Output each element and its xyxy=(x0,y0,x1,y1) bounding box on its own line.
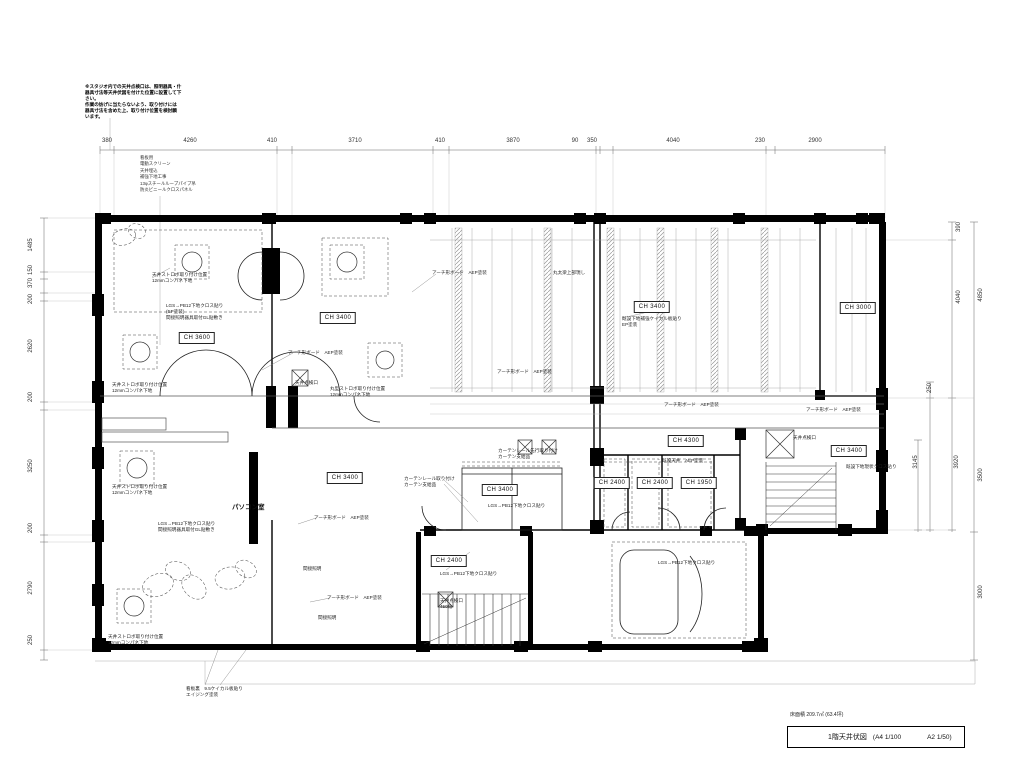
dim-top-10: 2900 xyxy=(808,138,821,144)
annotation-24: 天井点検口 450角 xyxy=(440,598,463,610)
ceiling-height-label-3: CH 3000 xyxy=(840,302,876,314)
annotation-20: 間接照明 xyxy=(303,566,321,572)
dim-top-2: 410 xyxy=(267,138,277,144)
border-lines xyxy=(95,118,975,684)
dim-left-2: 370 xyxy=(28,278,34,288)
dim-right-6: 3500 xyxy=(978,468,984,481)
dim-right-5: 3920 xyxy=(954,455,960,468)
annotation-28: 天井ストロボ取り付け位置 12mmコンパネ下地 xyxy=(108,634,163,646)
annotation-26: 天井点検口 xyxy=(793,435,816,441)
dim-left-0: 1485 xyxy=(28,238,34,251)
room-label-pc: パソコン室 xyxy=(232,501,265,511)
dim-right-3: 250 xyxy=(927,383,933,393)
floorplan-canvas: ※スタジオ内での天井点検口は、照明器具・什 器具寸法等天井伏図を付けた位置に設置… xyxy=(0,0,1024,778)
annotation-11: アーチ形ボード AEP塗装 xyxy=(664,402,719,408)
ceiling-height-label-5: CH 3400 xyxy=(831,445,867,457)
scale-a2: A2 1/50) xyxy=(927,734,952,741)
ceiling-height-label-1: CH 3400 xyxy=(320,312,356,324)
ceiling-height-label-11: CH 2400 xyxy=(431,555,467,567)
annotation-8: 丸太梁上部現し xyxy=(553,270,585,276)
leader-lines xyxy=(152,268,648,685)
partitions xyxy=(272,222,884,646)
dim-top-5: 3870 xyxy=(506,138,519,144)
annotation-5: 天井点検口 xyxy=(295,380,318,386)
annotation-4: アーチ形ボード AEP塗装 xyxy=(288,350,343,356)
annotation-21: アーチ形ボード AEP塗装 xyxy=(327,595,382,601)
annotation-12: アーチ形ボード AEP塗装 xyxy=(806,407,861,413)
hatched-strips xyxy=(455,228,768,392)
dim-left-5: 200 xyxy=(28,392,34,402)
annotation-1: LGS→PB12下地クロス貼り (EP塗装) 間接照明器具取付GL貼敷き xyxy=(166,303,223,321)
annotation-7: アーチ形ボード AEP塗装 xyxy=(432,270,487,276)
annotation-17: LGS→PB12下地クロス貼り xyxy=(488,503,545,509)
area-text: 床面積 209.7㎡ (63.4坪) xyxy=(790,711,843,718)
dim-right-7: 3000 xyxy=(978,585,984,598)
ceiling-height-label-7: CH 3400 xyxy=(482,484,518,496)
dim-top-1: 4260 xyxy=(183,138,196,144)
annotation-6: 丸型ストロボ取り付け位置 12mmコンパネ下地 xyxy=(330,386,385,398)
drawing-title: 1階天井伏図 xyxy=(828,732,867,742)
annotation-0: 天井ストロボ取り付け位置 12mmコンパネ下地 xyxy=(152,272,207,284)
annotation-2: 天井ストロボ取り付け位置 12mmコンパネ下地 xyxy=(112,382,167,394)
annotation-9: 既設下地補強ケイカル板貼り EP塗装 xyxy=(622,316,682,328)
dim-top-8: 4040 xyxy=(666,138,679,144)
ceiling-height-label-8: CH 2400 xyxy=(594,477,630,489)
ceiling-height-label-4: CH 4300 xyxy=(668,435,704,447)
scale-a4: (A4 1/100 xyxy=(873,734,901,741)
annotation-10: アーチ形ボード AEP塗装 xyxy=(497,369,552,375)
annotation-16: カーテンレール先行取り付け カーテン支給品 xyxy=(498,448,558,460)
ceiling-lines xyxy=(100,396,884,442)
annotation-3: 天井ストロボ取り付け位置 12mmコンパネ下地 xyxy=(112,484,167,496)
dim-left-3: 200 xyxy=(28,294,34,304)
ceiling-height-label-9: CH 2400 xyxy=(637,477,673,489)
dim-right-2: 4850 xyxy=(978,288,984,301)
dim-top-0: 380 xyxy=(102,138,112,144)
dim-left-6: 3250 xyxy=(28,459,34,472)
dim-left-1: 150 xyxy=(28,265,34,275)
annotation-23: LGS→PB12下地クロス貼り xyxy=(440,571,497,577)
annotation-19: アーチ形ボード AEP塗装 xyxy=(314,515,369,521)
dim-left-4: 2620 xyxy=(28,339,34,352)
ceiling-height-label-6: CH 3400 xyxy=(327,472,363,484)
ceiling-height-label-2: CH 3400 xyxy=(634,301,670,313)
dim-top-7: 350 xyxy=(587,138,597,144)
annotation-22: 間接照明 xyxy=(318,615,336,621)
dim-top-6: 90 xyxy=(572,138,579,144)
general-notes: ※スタジオ内での天井点検口は、照明器具・什 器具寸法等天井伏図を付けた位置に設置… xyxy=(85,84,235,120)
annotation-15: カーテンレール取り付け カーテン支給品 xyxy=(404,476,455,488)
strobe-circles xyxy=(124,252,394,616)
dimension-lines xyxy=(40,146,978,660)
ceiling-height-label-10: CH 1950 xyxy=(681,477,717,489)
annotation-27: 看板裏 9.5ケイカル板貼り エイジング塗装 xyxy=(186,686,243,698)
annotation-14: 既設下地現状クロス貼り xyxy=(846,464,897,470)
ceiling-height-label-0: CH 3600 xyxy=(179,332,215,344)
dim-right-4: 3145 xyxy=(913,455,919,468)
dim-top-9: 230 xyxy=(755,138,765,144)
annotation-13: 既設天井 AEP塗装 xyxy=(662,458,703,464)
title-block: 1階天井伏図 (A4 1/100 A2 1/50) xyxy=(787,726,965,748)
dim-right-0: 390 xyxy=(956,222,962,232)
dim-left-8: 2790 xyxy=(28,581,34,594)
dim-right-1: 4040 xyxy=(956,290,962,303)
dim-left-9: 250 xyxy=(28,635,34,645)
annotation-18: LGS→PB12下地クロス貼り 間接照明器具取付GL貼敷き xyxy=(158,521,215,533)
dim-top-4: 410 xyxy=(435,138,445,144)
dim-top-3: 3710 xyxy=(348,138,361,144)
annotation-25: LGS→PB12下地クロス貼り xyxy=(658,560,715,566)
fixture-leader-list: 看板用 電動スクリーン 天井埋込 補強下地工事 13φスチールループパイプ吊 防… xyxy=(140,155,196,193)
dim-left-7: 200 xyxy=(28,523,34,533)
